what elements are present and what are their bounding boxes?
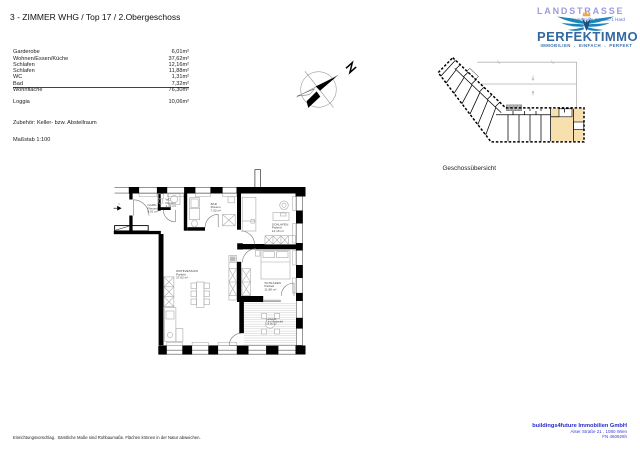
- svg-text:12,16 m²: 12,16 m²: [272, 229, 284, 233]
- svg-text:7,32 m²: 7,32 m²: [211, 208, 222, 212]
- svg-text:6,01 m²: 6,01 m²: [147, 210, 158, 214]
- svg-text:1,31 m²: 1,31 m²: [166, 204, 177, 208]
- svg-text:37,62 m²: 37,62 m²: [176, 276, 188, 280]
- svg-text:10,06 m²: 10,06 m²: [266, 322, 276, 326]
- svg-text:11,88 m²: 11,88 m²: [264, 287, 276, 291]
